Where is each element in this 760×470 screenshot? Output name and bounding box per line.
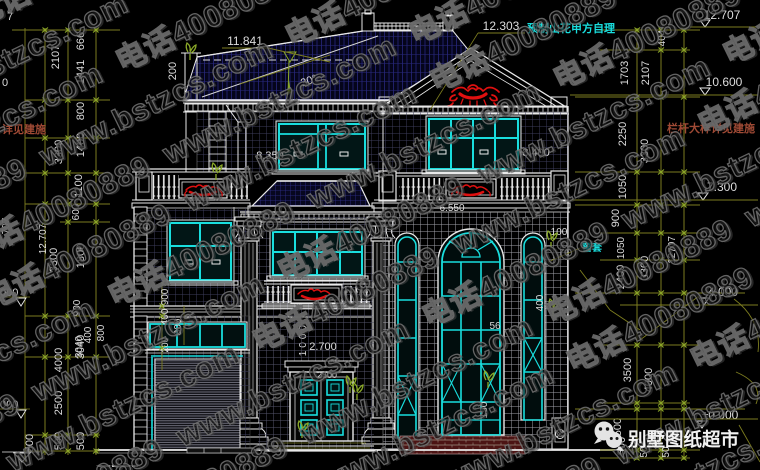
svg-text:别墅图纸超市: 别墅图纸超市 bbox=[627, 429, 739, 450]
